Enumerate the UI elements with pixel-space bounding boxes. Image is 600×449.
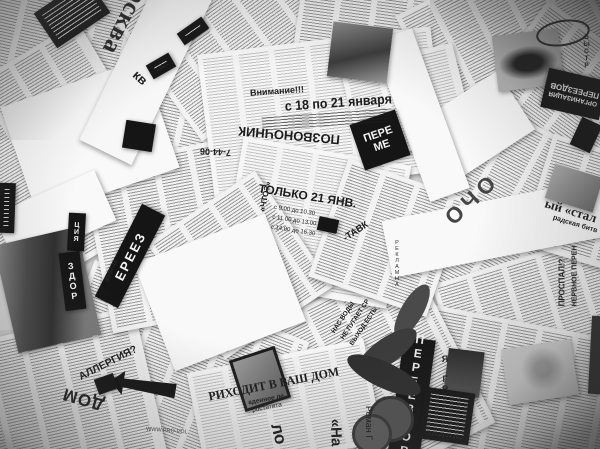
nervous-headline: НЕРВНОЕ ПЕРЕН bbox=[569, 246, 580, 307]
org-fragment-zdor-text: ЗДОР bbox=[65, 261, 80, 302]
phone-upside-down: 7-44-06 bbox=[200, 146, 232, 158]
overslept-headline: ПРОСПАЛ!? bbox=[556, 246, 569, 307]
org-fragment-ciya: ЦИЯ bbox=[67, 213, 86, 252]
newspaper-collage-photo: ПЕРЕ МЕ ЕРЕЕЗ ЦИЯ ЗДОР ПЕРЕЕЗДОВ ОРГАНИЗ… bbox=[0, 0, 600, 449]
org-fragment-ciya-text: ЦИЯ bbox=[72, 221, 80, 242]
na-vertical: «На bbox=[327, 418, 345, 446]
roman-vertical: Роман Г bbox=[364, 406, 374, 440]
reklamnaya-vertical: РЕКЛАМНАЯ bbox=[394, 240, 400, 288]
black-ad-box-left-edge bbox=[0, 183, 16, 234]
right-edge-vertical-headlines: ПРОСПАЛ!? НЕРВНОЕ ПЕРЕН bbox=[556, 246, 580, 307]
photo-dark-object bbox=[327, 22, 393, 84]
black-ad-box bbox=[122, 120, 156, 152]
ya-gr-vertical: Я ГР bbox=[440, 354, 450, 398]
bystr-vertical: БЫСТР bbox=[583, 34, 590, 70]
photo-teapot-sketch bbox=[501, 339, 579, 405]
